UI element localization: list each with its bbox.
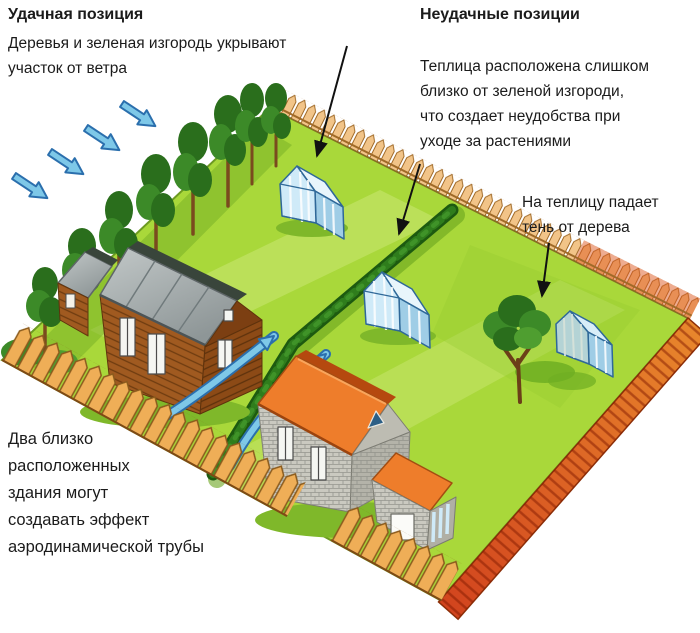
annex-window	[66, 294, 75, 308]
label-good-position-title: Удачная позиция	[8, 6, 143, 24]
label-good-position-body: Деревья и зеленая изгородь укрывают учас…	[8, 31, 286, 81]
illustration-page: Удачная позиция Деревья и зеленая изгоро…	[0, 0, 700, 633]
label-tree-shadow: На теплицу падает тень от дерева	[522, 190, 659, 240]
wind-arrows	[9, 97, 160, 205]
label-wind-tunnel: Два близко расположенных здания могут со…	[8, 426, 204, 561]
label-bad-positions-title: Неудачные позиции	[420, 6, 580, 24]
label-bad-positions-body: Теплица расположена слишком близко от зе…	[420, 54, 649, 154]
